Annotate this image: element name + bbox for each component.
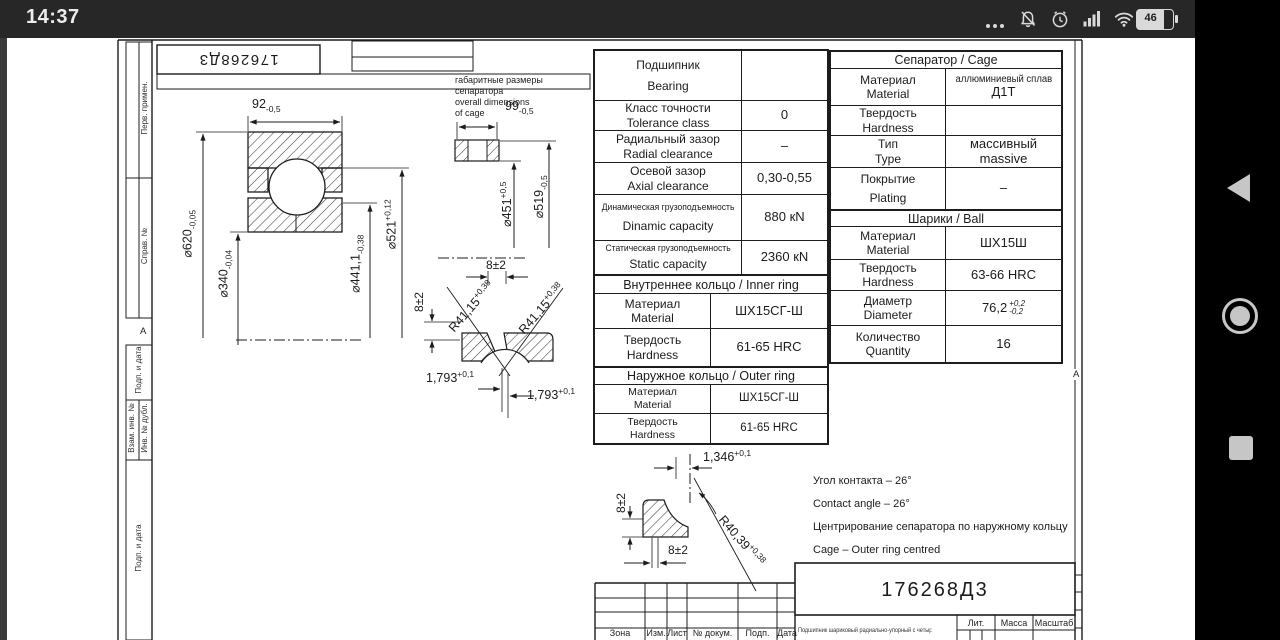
- table-row: Статическая грузоподъемностьStatic capac…: [595, 240, 827, 274]
- more-notifications-icon: [984, 15, 1006, 33]
- table-row: ТвердостьHardness 61-65 HRC: [595, 328, 827, 366]
- margin-label-inv-dubl: Инв. № дубл.: [141, 398, 149, 458]
- bearing-title-cell: Подшипник Bearing: [595, 51, 741, 100]
- dim-dia-441: ⌀441,1-0,38: [349, 219, 365, 309]
- stamp-doc-number-reversed: 176268Д3: [157, 45, 320, 74]
- table-row: ТвердостьHardness 61-65 HRC: [595, 413, 827, 443]
- ball-section-header: Шарики / Ball: [831, 209, 1061, 227]
- home-icon: [1230, 306, 1250, 326]
- col-lit: Лит.: [957, 618, 995, 628]
- margin-label-sprav-no: Справ. №: [141, 186, 149, 306]
- table-row: ДиаметрDiameter 76,2 +0,2-0,2: [831, 290, 1061, 325]
- empty-cell: [741, 51, 827, 100]
- col-zona: Зона: [595, 628, 645, 638]
- home-button[interactable]: [1222, 298, 1258, 334]
- cage-section-header: Сепаратор / Cage: [831, 52, 1061, 69]
- dim-width-99: 99-0,5: [505, 100, 534, 116]
- dim-dia-620: ⌀620-0,05: [181, 194, 197, 274]
- dim-dia-521: ⌀521+0,12: [383, 182, 398, 267]
- clock: 14:37: [26, 6, 80, 29]
- dim-1793-right: 1,793+0,1: [527, 387, 575, 402]
- col-list: Лист: [667, 628, 687, 638]
- dim-width-92: 92-0,5: [252, 98, 281, 114]
- margin-label-perv-primen: Перв. примен.: [141, 48, 149, 168]
- dim-offset-8-top: 8±2: [486, 259, 506, 271]
- margin-label-podp-data-1: Подп. и дата: [135, 340, 143, 400]
- dim-offset-8-vert: 8±2: [615, 486, 627, 520]
- phone-screen: 176268Д3 Перв. примен. Справ. № Подп. и …: [0, 0, 1280, 640]
- cellular-signal-icon: [1082, 9, 1102, 34]
- cage-note-line1: габаритные размеры: [455, 75, 543, 86]
- margin-label-vzam-inv: Взам. инв. №: [128, 398, 136, 458]
- col-massa: Масса: [995, 618, 1033, 628]
- battery-percent: 46: [1137, 12, 1164, 24]
- col-dokum: № докум.: [687, 628, 738, 638]
- table-row: МатериалMaterial аллюминиевый сплавД1Т: [831, 69, 1061, 105]
- dim-dia-451: ⌀451+0,5: [499, 169, 514, 239]
- col-izm: Изм.: [645, 628, 667, 638]
- zone-marker-a-right: А: [1072, 369, 1080, 380]
- col-masshtab: Масштаб: [1033, 618, 1075, 628]
- table-row: КоличествоQuantity 16: [831, 325, 1061, 362]
- col-podp: Подп.: [738, 628, 777, 638]
- wifi-icon: [1114, 9, 1134, 34]
- dim-dia-519: ⌀519-0,5: [533, 159, 549, 234]
- battery-icon: 46: [1136, 9, 1174, 30]
- table-row: ТвердостьHardness 63-66 HRC: [831, 259, 1061, 290]
- dim-offset-8-left: 8±2: [413, 285, 425, 319]
- notifications-muted-icon: [1018, 9, 1038, 34]
- table-row: Класс точностиTolerance class 0: [595, 100, 827, 130]
- table-row: МатериалMaterial ШХ15СГ-Ш: [595, 294, 827, 328]
- ball-diameter-value: 76,2 +0,2-0,2: [945, 291, 1061, 325]
- dim-dia-340: ⌀340-0,04: [217, 234, 233, 314]
- status-bar: [0, 0, 1195, 38]
- dim-offset-8-horiz: 8±2: [668, 544, 688, 556]
- table-row: Осевой зазорAxial clearance 0,30-0,55: [595, 162, 827, 194]
- zone-marker-a-left: А: [139, 326, 147, 337]
- back-button[interactable]: [1227, 174, 1250, 202]
- battery-nub: [1175, 15, 1178, 23]
- table-row: ПокрытиеPlating –: [831, 167, 1061, 209]
- table-row: Подшипник Bearing: [595, 51, 827, 100]
- dim-1346: 1,346+0,1: [703, 449, 751, 464]
- dim-1793-left: 1,793+0,1: [426, 370, 474, 385]
- outer-ring-section-header: Наружное кольцо / Outer ring: [595, 366, 827, 385]
- cage-note-line2: сепаратора: [455, 86, 543, 97]
- title-block-doc-number: 176268Д3: [795, 566, 1075, 615]
- note-cage-centring-ru: Центрирование сепаратора по наружному ко…: [813, 521, 1068, 533]
- title-block-description: Подшипник шариковый радиально-упорный с …: [798, 627, 931, 638]
- note-contact-angle-ru: Угол контакта – 26°: [813, 475, 912, 487]
- col-data: Дата: [777, 628, 795, 638]
- table-row: МатериалMaterial ШХ15СГ-Ш: [595, 385, 827, 413]
- cage-ball-spec-table: Сепаратор / Cage МатериалMaterial аллюми…: [829, 50, 1063, 364]
- inner-ring-section-header: Внутреннее кольцо / Inner ring: [595, 274, 827, 294]
- note-contact-angle-en: Contact angle – 26°: [813, 498, 910, 510]
- table-row: МатериалMaterial ШХ15Ш: [831, 227, 1061, 259]
- margin-label-podp-data-2: Подп. и дата: [135, 518, 143, 578]
- table-row: Радиальный зазорRadial clearance –: [595, 130, 827, 162]
- table-row: ТвердостьHardness: [831, 105, 1061, 135]
- bearing-spec-table: Подшипник Bearing Класс точностиToleranc…: [593, 49, 829, 445]
- note-cage-centring-en: Cage – Outer ring centred: [813, 544, 940, 556]
- alarm-icon: [1050, 9, 1070, 34]
- recent-apps-button[interactable]: [1229, 436, 1253, 460]
- table-row: Динамическая грузоподъемностьDinamic cap…: [595, 194, 827, 240]
- table-row: ТипType массивныйmassive: [831, 135, 1061, 167]
